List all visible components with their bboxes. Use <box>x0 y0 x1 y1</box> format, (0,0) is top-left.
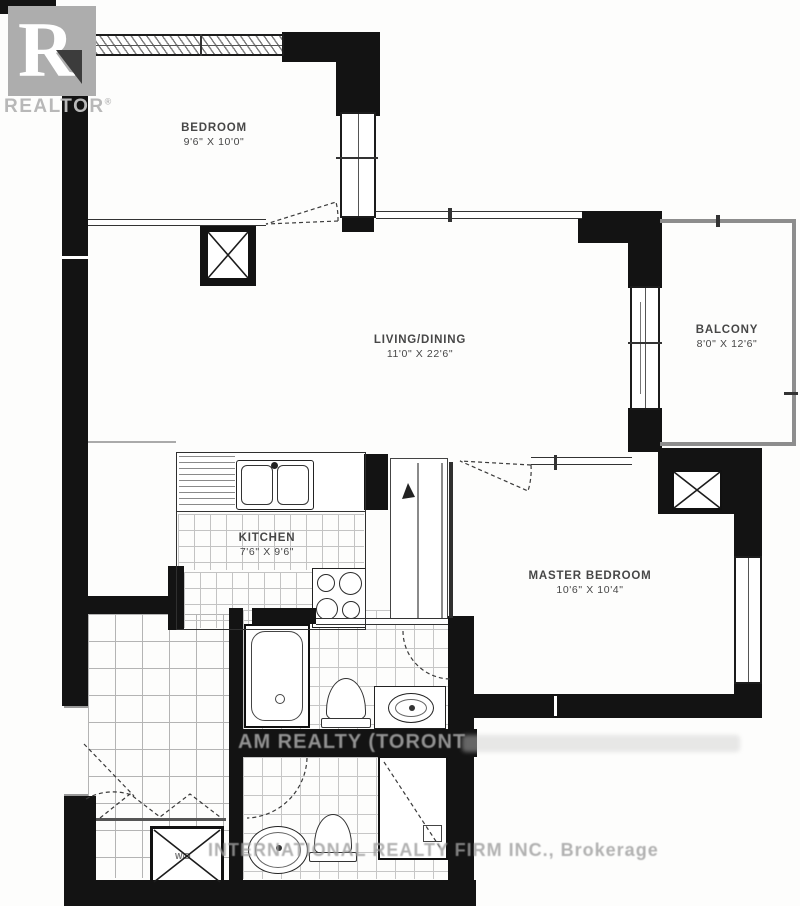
hall-closet <box>390 458 448 622</box>
room-dims: 9'6" X 10'0" <box>134 136 294 148</box>
room-name: KITCHEN <box>200 532 334 544</box>
balcony-rail <box>660 219 794 223</box>
balcony-rail <box>660 442 796 446</box>
room-label-living-dining: LIVING/DINING 11'0" X 22'6" <box>330 334 510 360</box>
wall-segment <box>336 32 380 116</box>
wall-segment <box>628 236 662 288</box>
dimension-tick <box>554 455 557 470</box>
watermark-faint-continuation <box>462 735 740 752</box>
entry-door-frame <box>64 706 88 708</box>
realtor-logo-letter: R <box>18 2 74 98</box>
room-name: BEDROOM <box>134 122 294 134</box>
watermark-middle: AM REALTY (TORONT <box>238 731 466 754</box>
room-name: LIVING/DINING <box>330 334 510 346</box>
wall-segment <box>628 408 662 452</box>
realtor-logo-text: REALTOR® <box>4 96 113 118</box>
room-dims: 8'0" X 12'6" <box>660 338 794 350</box>
master-bedroom-window <box>734 556 762 684</box>
room-dims: 7'6" X 9'6" <box>200 546 334 558</box>
room-label-master-bedroom: MASTER BEDROOM 10'6" X 10'4" <box>476 570 704 596</box>
entry-door-frame <box>64 794 88 796</box>
wall-segment <box>364 454 388 510</box>
closet-track-line <box>96 818 226 821</box>
thin-wall <box>531 457 632 465</box>
dimension-tick <box>716 215 720 227</box>
closet-door-line <box>417 463 419 619</box>
room-dims: 10'6" X 10'4" <box>476 584 704 596</box>
dimension-tick <box>554 696 557 716</box>
realtor-logo: R <box>8 6 96 96</box>
wall-segment <box>450 694 762 718</box>
wall-segment <box>734 514 762 558</box>
closet-x-box <box>208 232 248 278</box>
washer-dryer-label: W/D <box>175 852 191 861</box>
dimension-tick <box>62 256 88 259</box>
bedroom-side-window <box>340 112 376 218</box>
room-label-kitchen: KITCHEN 7'6" X 9'6" <box>200 532 334 558</box>
room-label-bedroom: BEDROOM 9'6" X 10'0" <box>134 122 294 148</box>
realtor-wordmark: REALTOR <box>4 96 105 117</box>
thin-wall <box>449 462 453 618</box>
wall-segment <box>64 796 96 884</box>
master-door-arc <box>460 461 531 491</box>
room-name: BALCONY <box>660 324 794 336</box>
balcony-sliding-door <box>630 286 660 410</box>
dimension-tick <box>628 342 662 344</box>
registered-mark: ® <box>105 97 113 107</box>
wall-segment <box>62 596 180 614</box>
room-dims: 11'0" X 22'6" <box>330 348 510 360</box>
hall-boundary-line <box>88 441 176 443</box>
shaft-x-box <box>672 470 722 510</box>
closet-door-line <box>441 463 443 619</box>
room-name: MASTER BEDROOM <box>476 570 704 582</box>
bathtub <box>244 624 310 728</box>
wall-segment <box>64 880 476 906</box>
vanity-sink <box>388 693 434 723</box>
dimension-tick <box>448 208 452 222</box>
dimension-tick <box>784 392 798 395</box>
dimension-tick <box>200 34 202 56</box>
thin-wall <box>88 219 266 226</box>
room-label-balcony: BALCONY 8'0" X 12'6" <box>660 324 794 350</box>
bedroom-top-window <box>88 34 284 56</box>
watermark-bottom: INTERNATIONAL REALTY FIRM INC., Brokerag… <box>208 840 659 861</box>
thin-wall <box>376 211 582 219</box>
dimension-tick <box>336 157 378 159</box>
bedroom-door-arc <box>266 202 338 224</box>
floor-plan: W/D <box>0 0 800 906</box>
